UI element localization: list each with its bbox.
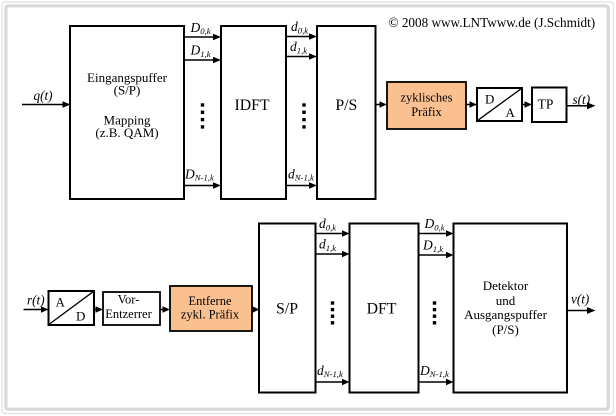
svg-text:q(t): q(t) [34, 88, 53, 103]
svg-text:A: A [506, 105, 516, 120]
svg-text:S/P: S/P [276, 301, 298, 318]
svg-text:(P/S): (P/S) [492, 322, 519, 337]
svg-text:DFT: DFT [367, 301, 397, 318]
svg-text:A: A [56, 295, 66, 310]
svg-text:(z.B. QAM): (z.B. QAM) [95, 125, 158, 140]
svg-text:(S/P): (S/P) [114, 83, 141, 98]
svg-text:Entzerrer: Entzerrer [105, 307, 152, 321]
svg-text:v(t): v(t) [571, 292, 589, 307]
svg-text:P/S: P/S [335, 97, 357, 114]
svg-text:Detektor: Detektor [483, 278, 529, 293]
svg-text:zyklisches: zyklisches [400, 91, 452, 105]
svg-text:Ausgangspuffer: Ausgangspuffer [464, 307, 547, 322]
svg-text:und: und [496, 293, 516, 308]
svg-text:IDFT: IDFT [234, 97, 269, 114]
svg-text:Präfix: Präfix [411, 105, 442, 119]
svg-text:Vor-: Vor- [118, 293, 140, 307]
svg-text:D: D [485, 92, 494, 107]
svg-text:r(t): r(t) [27, 293, 45, 308]
svg-text:D: D [76, 309, 85, 324]
svg-text:TP: TP [538, 97, 554, 112]
svg-text:© 2008 www.LNTwww.de (J.Schmid: © 2008 www.LNTwww.de (J.Schmidt) [389, 15, 596, 30]
svg-text:zykl. Präfix: zykl. Präfix [181, 308, 240, 322]
svg-text:Entferne: Entferne [188, 294, 231, 308]
